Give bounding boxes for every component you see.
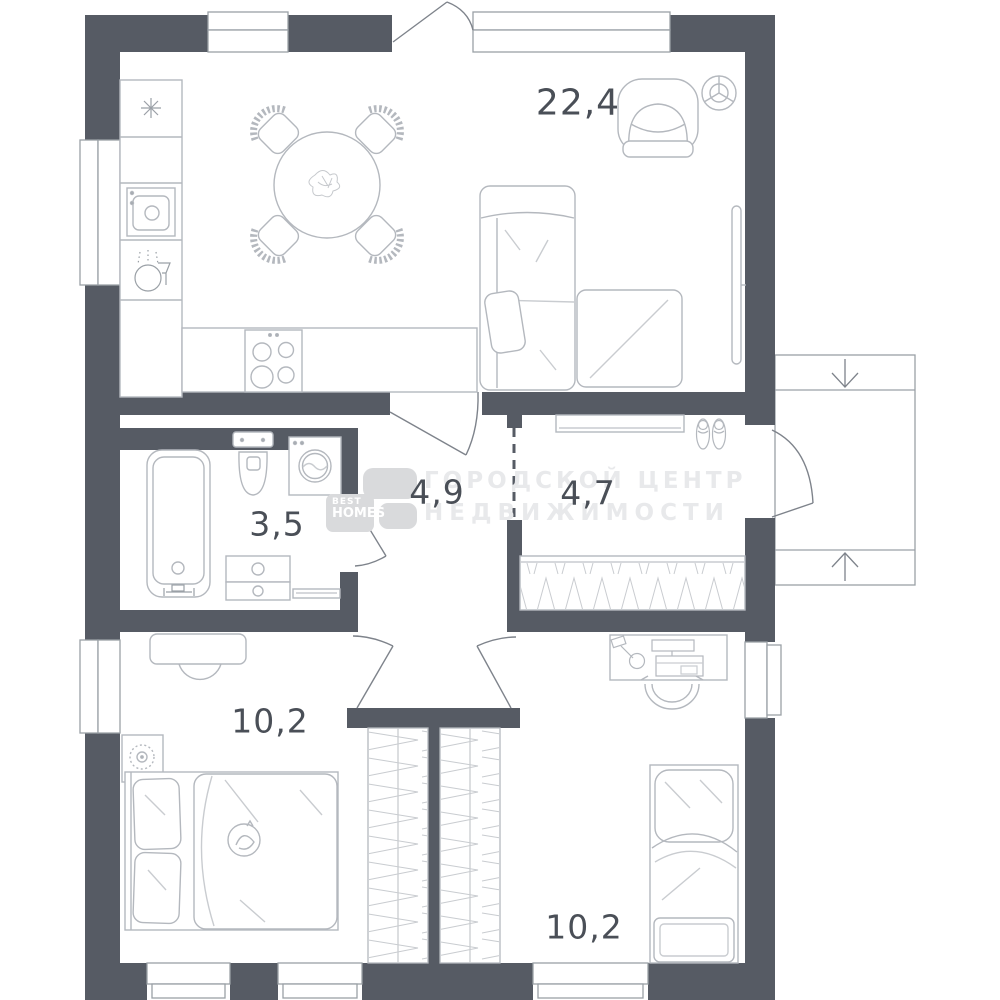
- room-label-bedroom-right: 10,2: [545, 908, 622, 947]
- room-label-living: 22,4: [536, 83, 620, 124]
- room-label-corridor: 4,7: [560, 474, 615, 513]
- room-labels: 22,4 3,5 4,9 4,7 10,2 10,2: [0, 0, 1000, 1000]
- room-label-bedroom-left: 10,2: [231, 702, 308, 741]
- room-label-bathroom: 3,5: [249, 505, 304, 544]
- floor-plan: ГОРОДСКОЙ ЦЕНТР НЕДВИЖИМОСТИ BEST HOMES …: [0, 0, 1000, 1000]
- room-label-hallway: 4,9: [409, 473, 464, 512]
